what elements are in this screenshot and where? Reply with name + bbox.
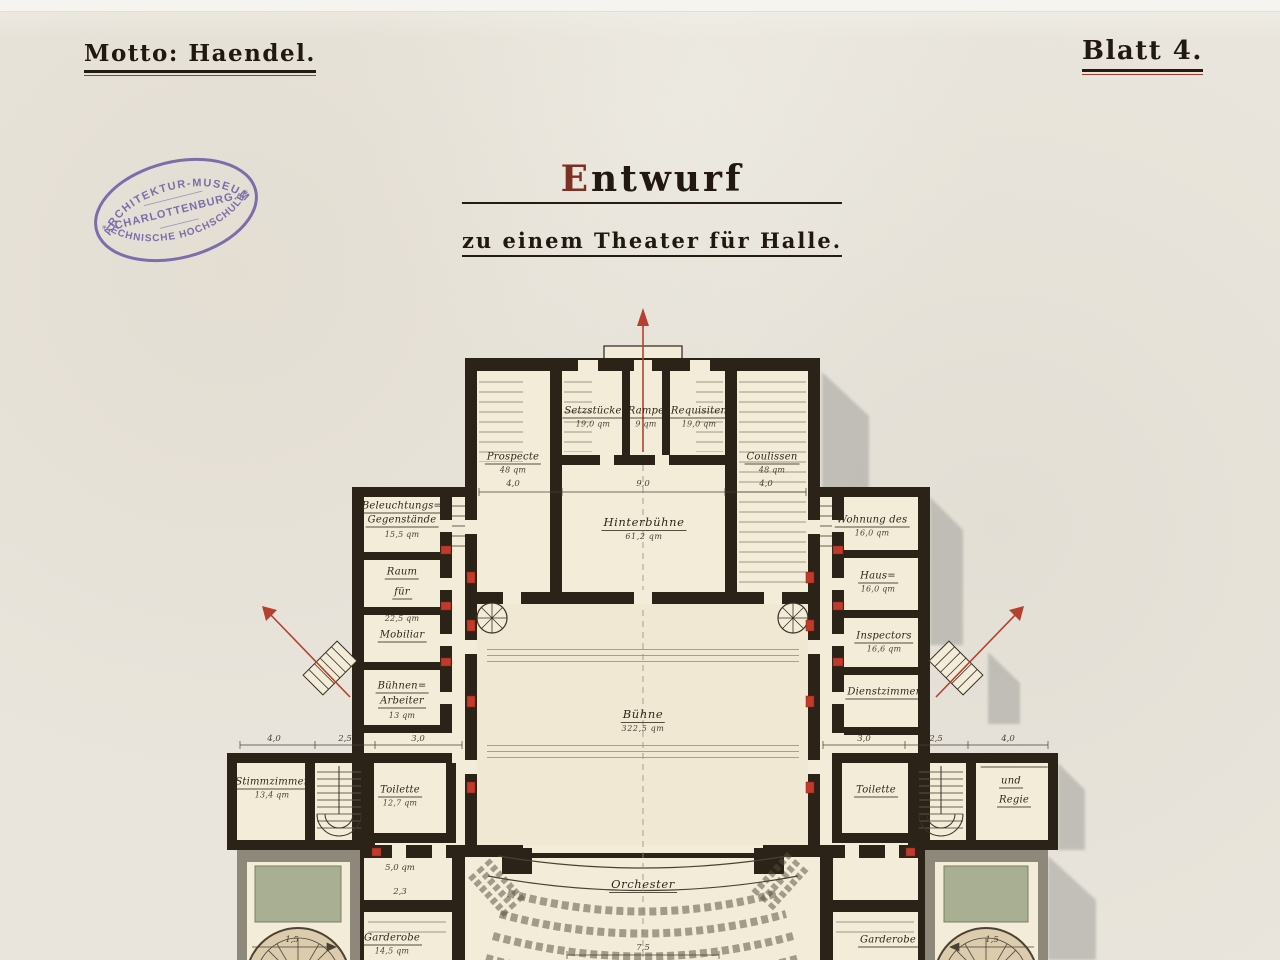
sheet-underline-red xyxy=(1082,74,1203,76)
dimension-label: 4,0 xyxy=(758,479,773,489)
drawing-title: Entwurf xyxy=(561,158,744,200)
dimension-label: 7,5 xyxy=(636,943,650,953)
sheet-underline xyxy=(1082,69,1203,72)
dimension-label: 2,5 xyxy=(928,734,943,744)
sheet-number-text: Blatt 4. xyxy=(1082,36,1203,66)
dimension-label: 1,5 xyxy=(285,935,299,945)
sheet-number: Blatt 4. xyxy=(1082,36,1203,75)
drawing-sheet: 4,0 2,5 3,0 3,0 2,5 4,0 4,0 9,0 4,0 7,5 … xyxy=(0,0,1280,960)
dimension-label: 4,0 xyxy=(505,479,520,489)
dimension-label: 1,5 xyxy=(985,935,999,945)
motto-underline xyxy=(84,70,316,73)
stamp-text-middle: CHARLOTTENBURG. xyxy=(114,190,239,232)
exterior-stair-left xyxy=(303,641,357,695)
dimension-label: 5,0 qm xyxy=(385,863,415,873)
subtitle-underline xyxy=(462,255,842,257)
dimension-label: 3,0 xyxy=(857,734,871,744)
floor-plan-drawing: 4,0 2,5 3,0 3,0 2,5 4,0 4,0 9,0 4,0 7,5 … xyxy=(0,0,1280,960)
dimension-label: 3,0 xyxy=(411,734,425,744)
dimension-label: 4,0 xyxy=(266,734,281,744)
motto-title: Motto: Haendel. xyxy=(84,40,316,76)
motto-text: Motto: Haendel. xyxy=(84,40,316,67)
dimension-label: 9,0 xyxy=(636,479,650,489)
dimension-label: 2,3 xyxy=(392,887,407,897)
drawing-subtitle: zu einem Theater für Halle. xyxy=(462,228,842,253)
drawing-title-block: Entwurf zu einem Theater für Halle. xyxy=(462,158,842,257)
exterior-stair-right xyxy=(929,641,983,695)
motto-underline-red xyxy=(84,75,316,77)
dimension-label: 4,0 xyxy=(1000,734,1015,744)
dimension-label: 2,5 xyxy=(337,734,352,744)
